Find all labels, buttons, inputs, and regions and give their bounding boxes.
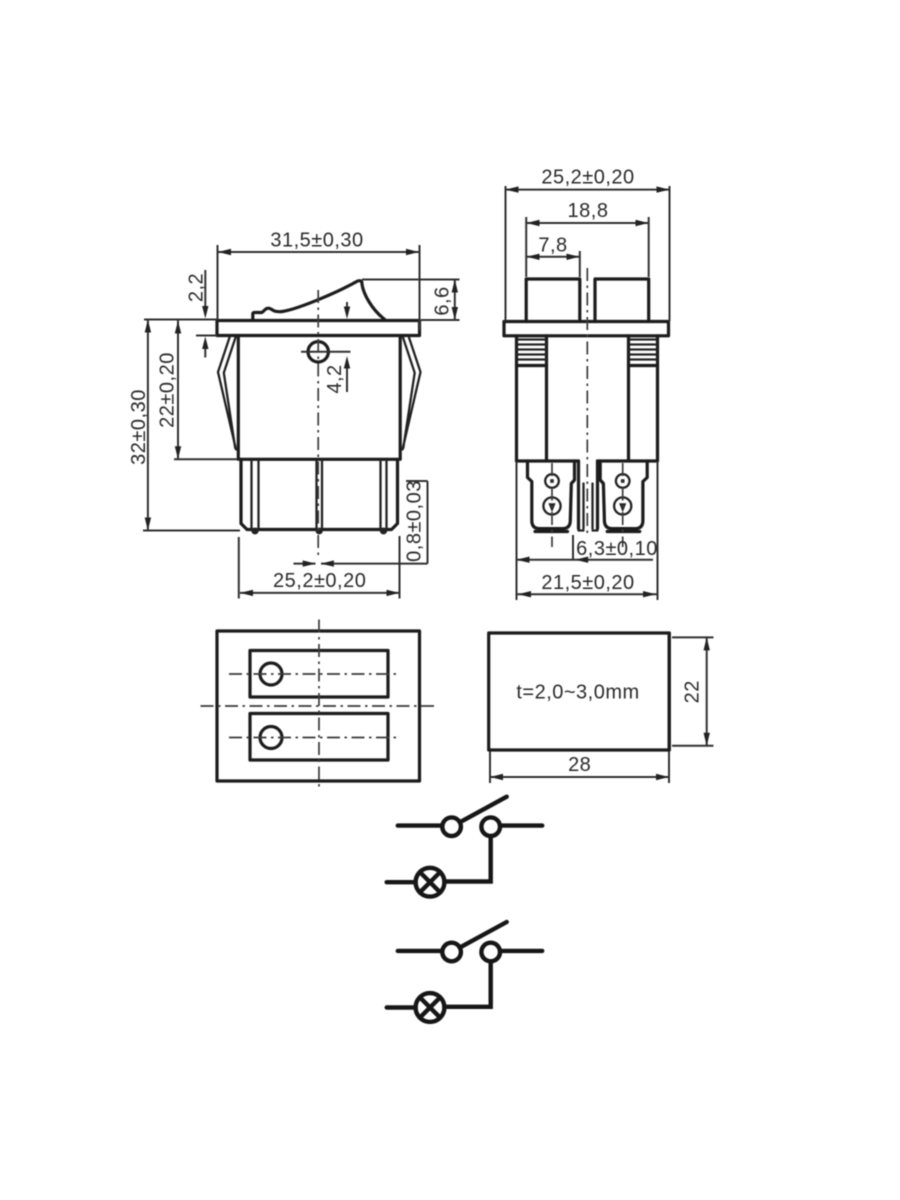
svg-text:18,8: 18,8 [568,200,609,222]
svg-text:6,3±0,10: 6,3±0,10 [576,538,658,560]
svg-text:25,2±0,20: 25,2±0,20 [273,570,366,592]
svg-text:2,2: 2,2 [186,273,208,302]
svg-text:32±0,30: 32±0,30 [128,389,150,465]
svg-text:t=2,0~3,0mm: t=2,0~3,0mm [516,682,639,704]
svg-text:28: 28 [568,754,591,776]
svg-text:4,2: 4,2 [324,364,346,393]
svg-text:7,8: 7,8 [538,235,567,257]
svg-text:22: 22 [682,680,704,703]
svg-text:6,6: 6,6 [432,286,454,315]
svg-text:22±0,20: 22±0,20 [157,352,179,428]
svg-text:25,2±0,20: 25,2±0,20 [541,167,634,189]
svg-text:0,8±0,03: 0,8±0,03 [404,480,426,562]
svg-text:21,5±0,20: 21,5±0,20 [541,572,634,594]
svg-text:31,5±0,30: 31,5±0,30 [270,230,363,252]
